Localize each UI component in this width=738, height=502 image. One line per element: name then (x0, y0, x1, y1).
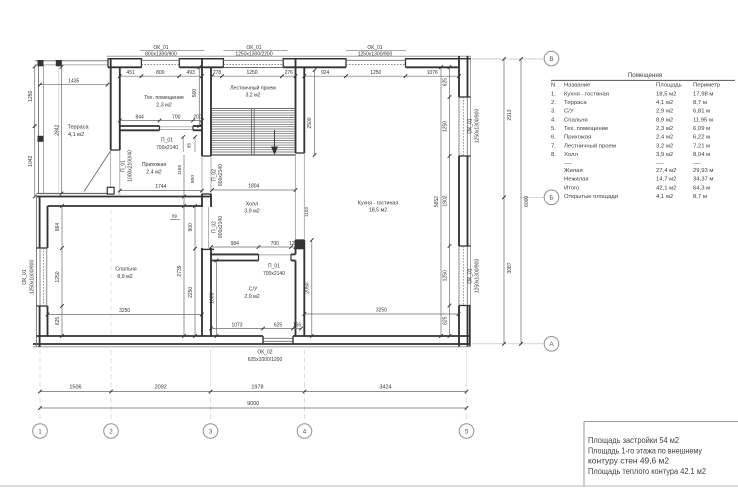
svg-text:6000: 6000 (524, 196, 530, 207)
svg-text:924: 924 (321, 70, 330, 76)
svg-text:Спальня: Спальня (564, 117, 588, 123)
svg-text:П_01: П_01 (268, 264, 280, 270)
svg-text:700х2140: 700х2140 (156, 145, 178, 151)
svg-text:1250: 1250 (55, 271, 61, 282)
svg-text:864: 864 (55, 223, 61, 232)
svg-text:2,3 м2: 2,3 м2 (156, 103, 171, 109)
svg-text:3424: 3424 (379, 385, 391, 391)
svg-text:6.: 6. (551, 135, 556, 141)
svg-text:27,4 м2: 27,4 м2 (656, 168, 676, 174)
svg-text:1076: 1076 (427, 70, 438, 76)
svg-text:2.: 2. (551, 100, 556, 106)
svg-text:1250: 1250 (442, 270, 448, 281)
svg-text:2050: 2050 (305, 282, 311, 293)
svg-text:800: 800 (156, 70, 165, 76)
svg-text:ОК_01: ОК_01 (468, 118, 474, 133)
svg-text:2842: 2842 (54, 124, 60, 135)
svg-text:8.: 8. (551, 152, 556, 158)
svg-text:89: 89 (172, 214, 178, 219)
svg-text:42,1 м2: 42,1 м2 (656, 185, 676, 191)
svg-text:17,98 м: 17,98 м (693, 91, 713, 97)
svg-text:34,37 м: 34,37 м (693, 177, 713, 183)
svg-text:1250: 1250 (246, 70, 257, 76)
svg-text:1250х1300/900: 1250х1300/900 (474, 259, 480, 294)
svg-text:С/У: С/У (249, 287, 258, 293)
svg-text:3,2 м2: 3,2 м2 (245, 93, 260, 99)
svg-text:1435: 1435 (68, 79, 79, 85)
svg-text:ОК_01: ОК_01 (468, 268, 474, 283)
svg-text:5652: 5652 (434, 196, 440, 207)
svg-text:3250: 3250 (376, 308, 387, 314)
svg-text:3,2 м2: 3,2 м2 (656, 143, 673, 149)
svg-text:4.: 4. (551, 117, 556, 123)
svg-text:Терраса: Терраса (67, 125, 89, 131)
svg-text:3.: 3. (551, 109, 556, 115)
svg-text:800х1300/900: 800х1300/900 (145, 52, 177, 58)
svg-text:С/У: С/У (564, 109, 574, 115)
svg-text:2,4 м2: 2,4 м2 (146, 170, 161, 176)
svg-text:844: 844 (135, 115, 144, 121)
svg-text:----: ---- (656, 161, 664, 167)
svg-text:625: 625 (55, 317, 61, 326)
svg-text:1: 1 (38, 428, 42, 435)
svg-text:Итого: Итого (564, 185, 580, 191)
svg-text:1250х1300/2200: 1250х1300/2200 (235, 52, 272, 58)
svg-text:2250: 2250 (188, 287, 194, 298)
svg-text:П_02: П_02 (212, 169, 218, 181)
svg-text:Кухня - гостиная: Кухня - гостиная (564, 91, 609, 97)
svg-text:1102: 1102 (304, 207, 310, 218)
svg-text:5.: 5. (551, 126, 556, 132)
svg-text:Открытые площади: Открытые площади (564, 194, 618, 200)
svg-text:800х2140: 800х2140 (218, 164, 224, 186)
svg-text:2: 2 (109, 428, 113, 435)
svg-text:Жилая: Жилая (564, 168, 583, 174)
svg-text:2,9 м2: 2,9 м2 (244, 294, 259, 300)
svg-text:4,1 м2: 4,1 м2 (656, 100, 673, 106)
svg-text:----: ---- (693, 161, 701, 167)
svg-text:Тех. помещение: Тех. помещение (564, 126, 609, 132)
svg-text:29,93 м: 29,93 м (693, 168, 713, 174)
svg-text:Холл: Холл (564, 152, 578, 158)
svg-text:8,7 м: 8,7 м (693, 194, 707, 200)
svg-text:Периметр: Периметр (693, 83, 721, 89)
svg-text:5: 5 (465, 428, 469, 435)
svg-text:Название: Название (564, 83, 591, 89)
svg-text:9000: 9000 (247, 401, 259, 407)
svg-text:Лестничный проем: Лестничный проем (230, 85, 276, 92)
svg-text:8,9 м2: 8,9 м2 (656, 117, 673, 123)
svg-text:2,4 м2: 2,4 м2 (656, 135, 673, 141)
svg-text:1250: 1250 (442, 121, 448, 132)
svg-text:1250: 1250 (28, 90, 34, 101)
svg-text:200: 200 (193, 115, 202, 121)
svg-text:4,1 м2: 4,1 м2 (68, 132, 84, 138)
svg-text:2739: 2739 (177, 265, 183, 276)
svg-text:278: 278 (213, 70, 222, 76)
svg-text:7,21 м: 7,21 м (693, 143, 710, 149)
svg-text:625: 625 (274, 323, 283, 329)
svg-text:Холл: Холл (246, 202, 258, 208)
svg-text:контуру стен 49,6 м2: контуру стен 49,6 м2 (588, 457, 669, 466)
svg-text:3,9 м2: 3,9 м2 (244, 209, 259, 215)
svg-text:Спальня: Спальня (115, 267, 136, 273)
svg-text:6,22 м: 6,22 м (693, 135, 710, 141)
svg-text:1250х1000/900: 1250х1000/900 (29, 260, 35, 295)
svg-text:П_02: П_02 (212, 221, 218, 233)
svg-text:П_01: П_01 (121, 160, 127, 172)
svg-text:18,5 м2: 18,5 м2 (656, 91, 676, 97)
svg-text:Прихожая: Прихожая (142, 162, 167, 168)
svg-text:Тех. помещение: Тех. помещение (144, 95, 184, 101)
svg-text:18,5 м2: 18,5 м2 (369, 208, 387, 214)
svg-text:625: 625 (442, 316, 448, 325)
svg-text:ОК_01: ОК_01 (153, 45, 168, 51)
svg-text:2092: 2092 (155, 385, 167, 391)
svg-text:6,09 м: 6,09 м (693, 126, 710, 132)
svg-text:Помещения: Помещения (628, 72, 662, 79)
svg-text:ОК_01: ОК_01 (367, 45, 382, 51)
svg-text:2500: 2500 (307, 117, 313, 128)
svg-text:3250: 3250 (119, 308, 130, 314)
svg-text:800х2140: 800х2140 (218, 216, 224, 238)
svg-text:276: 276 (285, 70, 294, 76)
svg-text:1978: 1978 (251, 385, 263, 391)
svg-text:Площадь теплого контура 42.1: Площадь теплого контура 42.1 м2 (588, 467, 706, 476)
svg-text:ОК_01: ОК_01 (22, 269, 28, 284)
svg-text:984: 984 (231, 241, 240, 247)
svg-text:700: 700 (172, 115, 181, 121)
svg-text:ОК_01: ОК_01 (246, 45, 261, 51)
svg-text:6,81 м: 6,81 м (693, 109, 710, 115)
svg-text:В: В (549, 56, 553, 63)
svg-text:166: 166 (293, 323, 302, 329)
svg-text:493: 493 (186, 70, 195, 76)
svg-text:451: 451 (126, 70, 135, 76)
svg-text:500: 500 (192, 89, 198, 98)
svg-text:Кухня - гостиная: Кухня - гостиная (358, 201, 399, 207)
svg-text:8,9 м2: 8,9 м2 (117, 274, 132, 280)
svg-text:1073: 1073 (231, 323, 242, 329)
svg-text:П_01: П_01 (161, 138, 173, 144)
svg-text:Площадь 1-го этажа по внешнему: Площадь 1-го этажа по внешнему (588, 446, 703, 455)
svg-text:1000х2100/40: 1000х2100/40 (128, 150, 134, 182)
svg-text:Площадь: Площадь (656, 83, 682, 89)
svg-text:11,95 м: 11,95 м (693, 117, 713, 123)
svg-text:700х2140: 700х2140 (263, 271, 285, 277)
svg-text:N: N (551, 83, 555, 89)
svg-text:800: 800 (190, 175, 196, 183)
svg-text:----: ---- (564, 161, 572, 167)
svg-text:1165: 1165 (177, 165, 183, 176)
svg-text:1250х1300/900: 1250х1300/900 (474, 109, 480, 144)
svg-text:625х1000/1200: 625х1000/1200 (248, 357, 283, 363)
svg-text:625: 625 (442, 78, 448, 87)
svg-text:4: 4 (303, 428, 307, 435)
svg-text:3,9 м2: 3,9 м2 (656, 152, 673, 158)
svg-text:ОК_02: ОК_02 (257, 350, 272, 356)
svg-text:700: 700 (271, 241, 280, 247)
svg-text:1.: 1. (551, 91, 556, 97)
svg-text:2,3 м2: 2,3 м2 (656, 126, 673, 132)
svg-text:1250х1300/900: 1250х1300/900 (358, 52, 393, 58)
svg-text:Площадь застройки 54 м2: Площадь застройки 54 м2 (588, 436, 679, 445)
svg-text:Нежилая: Нежилая (564, 177, 589, 183)
svg-text:120: 120 (289, 241, 298, 247)
svg-text:3087: 3087 (507, 262, 513, 273)
svg-text:1804: 1804 (248, 184, 259, 190)
svg-text:14,7 м2: 14,7 м2 (656, 177, 676, 183)
svg-text:64,3 м: 64,3 м (693, 185, 710, 191)
svg-text:2913: 2913 (507, 109, 513, 120)
svg-text:Лестничный проем: Лестничный проем (564, 142, 616, 149)
svg-text:Терраса: Терраса (564, 100, 587, 106)
svg-text:1250: 1250 (370, 70, 381, 76)
svg-text:Б: Б (549, 195, 553, 202)
svg-text:1902: 1902 (442, 195, 448, 206)
svg-text:Прихожая: Прихожая (564, 135, 591, 141)
svg-text:900: 900 (188, 223, 194, 232)
svg-text:3: 3 (209, 428, 213, 435)
svg-text:1506: 1506 (69, 385, 81, 391)
svg-text:1600: 1600 (209, 292, 215, 303)
svg-text:7.: 7. (551, 143, 556, 149)
svg-text:2,9 м2: 2,9 м2 (656, 109, 673, 115)
svg-text:8,04 м: 8,04 м (693, 152, 710, 158)
svg-text:1744: 1744 (155, 184, 166, 190)
svg-text:1042: 1042 (28, 155, 34, 166)
svg-text:4,1 м2: 4,1 м2 (656, 194, 673, 200)
svg-text:8,7 м: 8,7 м (693, 100, 707, 106)
svg-text:85: 85 (187, 143, 192, 149)
